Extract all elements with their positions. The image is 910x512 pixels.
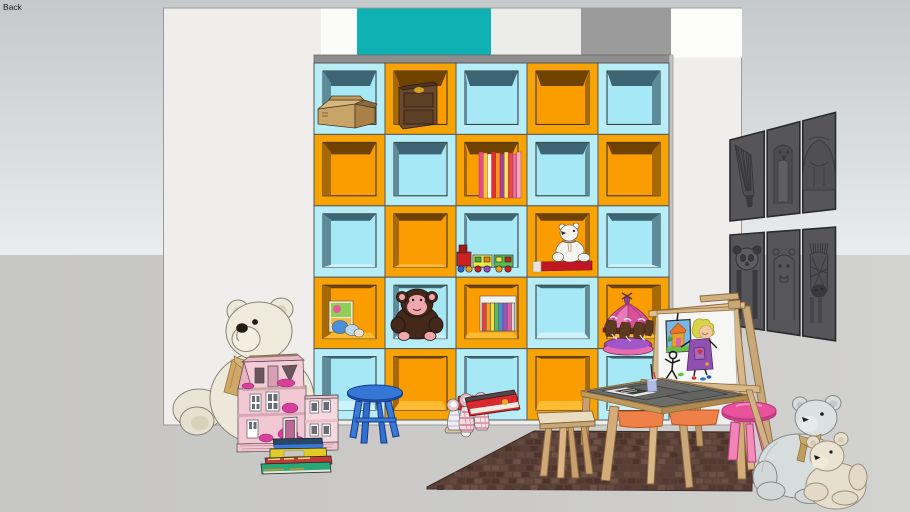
svg-text:Back: Back — [3, 2, 23, 12]
